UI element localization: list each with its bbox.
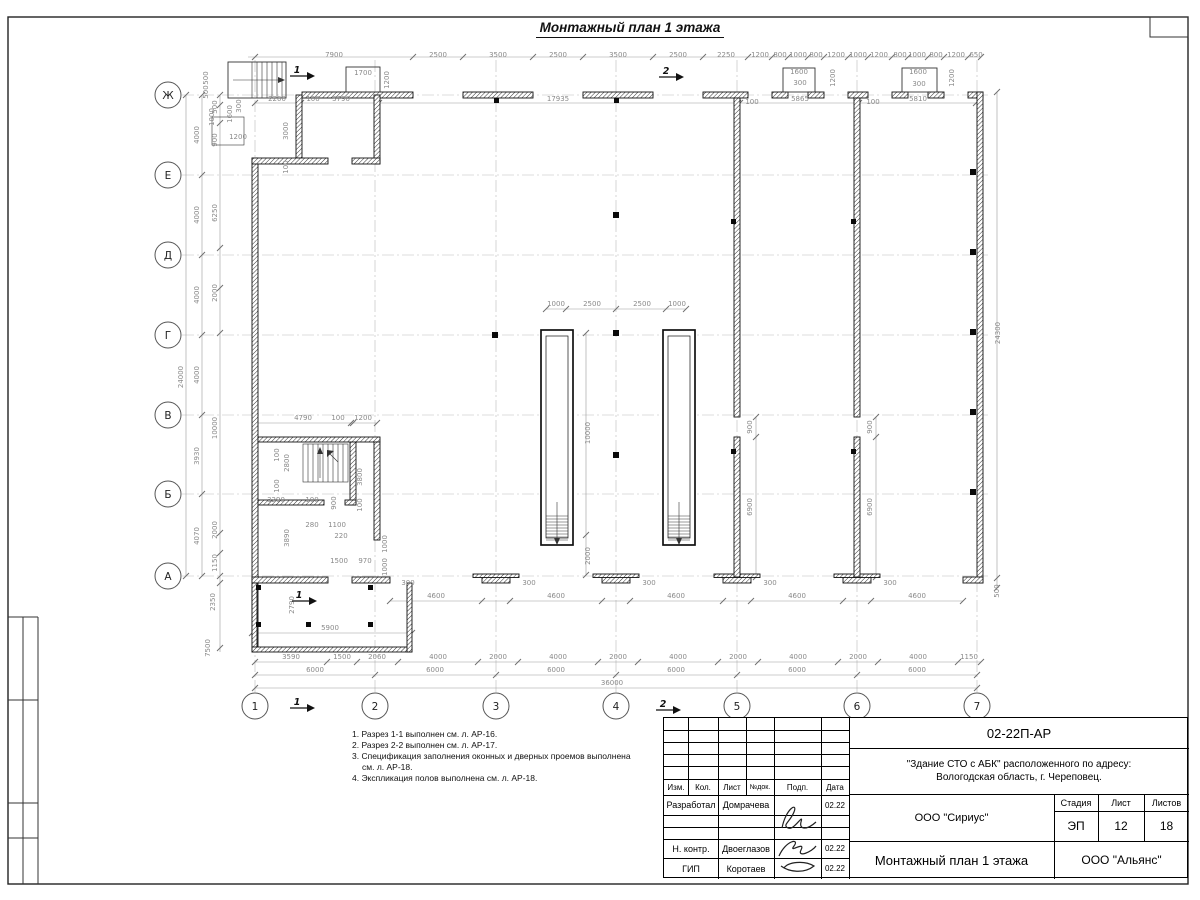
grid-and-dimensions [182,54,1000,694]
dimension-label: 5900 [321,624,339,632]
dimension-label: 1000 [208,108,216,126]
drawing-sheet: ЖЕДГВБА123456779002500350025003500250022… [0,0,1200,900]
dimension-label: 800 [773,51,786,59]
tb-date-developed: 02.22 [821,795,849,815]
tb-stage-label: Стадия [1054,794,1098,811]
dimension-label: 500 [202,85,210,98]
dimension-label: 6000 [667,666,685,674]
dimension-label: 4000 [193,126,201,144]
dimension-label: 1200 [948,69,956,87]
dimension-label: 2000 [609,653,627,661]
dimension-label: 1000 [381,558,389,576]
axis-label-row: А [164,571,172,583]
dimension-label: 4790 [294,414,312,422]
tb-col-list: Лист [718,779,746,795]
axis-label-row: Е [165,170,172,182]
dimension-label: 7500 [204,639,212,657]
dimension-label: 6900 [866,498,874,516]
dimension-label: 300 [522,579,535,587]
dimension-label: 1600 [790,68,808,76]
dimension-label: 1200 [229,133,247,141]
dimension-label: 1700 [354,69,372,77]
section-mark-arrow [307,72,315,80]
dimension-label: 2500 [583,300,601,308]
axis-label-col: 6 [854,701,861,713]
dimension-label: 800 [929,51,942,59]
dimension-label: 4000 [549,653,567,661]
tb-listov-label: Листов [1144,794,1189,811]
dimension-label: 900 [330,496,338,509]
dimension-label: 300 [763,579,776,587]
dimension-label: 1000 [668,300,686,308]
axis-label-col: 7 [974,701,981,713]
dimension-label: 6900 [746,498,754,516]
dimension-label: 2000 [584,547,592,565]
dimension-label: 2500 [669,51,687,59]
dimension-label: 5810 [909,95,927,103]
dimension-label: 900 [746,420,754,433]
dimension-label: 4600 [667,592,685,600]
axis-label-col: 4 [613,701,620,713]
dimension-label: 1200 [383,71,391,89]
tb-col-kol: Кол. [688,779,718,795]
axis-label-row: Г [165,330,171,342]
dimension-label: 800 [893,51,906,59]
dimension-label: 3500 [609,51,627,59]
note-line: 4. Экспликация полов выполнена см. л. АР… [352,773,634,784]
dimension-label: 4000 [669,653,687,661]
dimension-label: 100 [356,498,364,511]
dimension-label: 4000 [429,653,447,661]
inspection-pits [541,330,695,545]
note-line: 1. Разрез 1-1 выполнен см. л. АР-16. [352,729,634,740]
tb-listov-value: 18 [1144,811,1189,841]
dimension-label: 6000 [547,666,565,674]
dimension-label: 500 [993,584,1001,597]
dimension-label: 1150 [211,554,219,572]
dimension-label: 300 [235,99,243,112]
dimension-label: 2060 [368,653,386,661]
dimension-label: 4600 [908,592,926,600]
dimension-label: 2350 [209,593,217,611]
dimension-label: 100 [331,414,344,422]
axis-label-col: 3 [493,701,500,713]
tb-stage-value: ЭП [1054,811,1098,841]
tb-object: "Здание СТО с АБК" расположенного по адр… [849,748,1189,794]
dimension-label: 900 [211,133,219,146]
dimension-label: 24300 [994,322,1002,344]
notes: 1. Разрез 1-1 выполнен см. л. АР-16.2. Р… [352,729,634,784]
tb-role-developed: Разработал [664,795,718,815]
dimension-label: 17935 [547,95,569,103]
corner-doc-box [1150,17,1188,37]
tb-name-gip: Коротаев [718,858,774,879]
dimension-label: 300 [912,80,925,88]
dimension-label: 36000 [601,679,623,687]
tb-list-label: Лист [1098,794,1144,811]
dimension-label: 4000 [909,653,927,661]
tb-col-data: Дата [821,779,849,795]
dimension-label: 3930 [193,447,201,465]
dimension-label: 2500 [429,51,447,59]
dimension-label: 3500 [489,51,507,59]
dimension-label: 2000 [729,653,747,661]
tb-org-design: ООО "Сириус" [849,794,1054,841]
section-mark-arrow [673,706,681,714]
dimension-label: 2500 [633,300,651,308]
tb-drawing-title: Монтажный план 1 этажа [849,841,1054,879]
tb-date-ncontrol: 02.22 [821,839,849,858]
dimension-label: 6000 [788,666,806,674]
dimension-label: 100 [273,448,281,461]
section-mark-label: 1 [294,65,301,76]
dimension-label: 1200 [947,51,965,59]
dimension-label: 10000 [211,417,219,439]
tb-role-gip: ГИП [664,858,718,879]
axis-label-col: 5 [734,701,741,713]
generated-annotations: ЖЕДГВБА123456779002500350025003500250022… [155,51,1002,719]
dimension-label: 1100 [328,521,346,529]
dimension-label: 6000 [908,666,926,674]
dimension-label: 4070 [193,527,201,545]
dimension-label: 100 [273,479,281,492]
dimension-label: 650 [969,51,982,59]
dimension-label: 1600 [909,68,927,76]
dimension-label: 2500 [549,51,567,59]
dimension-label: 7900 [325,51,343,59]
dimension-label: 3290 [267,496,285,504]
walls [252,92,983,652]
dimension-label: 300 [793,79,806,87]
note-line: 3. Спецификация заполнения оконных и две… [352,751,634,773]
dimension-label: 4600 [427,592,445,600]
dimension-label: 4000 [193,366,201,384]
dimension-label: 4600 [788,592,806,600]
signature-gip [774,836,821,878]
dimension-label: 2000 [489,653,507,661]
dimension-label: 1200 [829,69,837,87]
axis-label-col: 1 [252,701,259,713]
title-block: Изм. Кол. Лист №док. Подп. Дата Разработ… [663,717,1188,878]
section-mark-arrow [676,73,684,81]
section-mark-label: 1 [296,590,303,601]
frame-stamp-cells [8,617,38,884]
axis-label-row: Ж [162,90,174,102]
dimension-label: 900 [866,420,874,433]
dimension-label: 100 [866,98,879,106]
dimension-label: 300 [401,579,414,587]
section-mark-arrow [309,597,317,605]
tb-object-line1: "Здание СТО с АБК" расположенного по адр… [907,758,1132,771]
dimension-label: 3000 [282,122,290,140]
dimension-label: 220 [334,532,347,540]
dimension-label: 6000 [306,666,324,674]
axis-label-col: 2 [372,701,379,713]
dimension-label: 500 [202,71,210,84]
tb-name-ncontrol: Двоеглазов [718,839,774,858]
tb-role-ncontrol: Н. контр. [664,839,718,858]
dimension-label: 1000 [547,300,565,308]
plan-title: Монтажный план 1 этажа [505,20,755,35]
dimension-label: 1200 [751,51,769,59]
dimension-label: 1200 [354,414,372,422]
dimension-label: 1150 [960,653,978,661]
dimension-label: 5865 [791,95,809,103]
dimension-label: 10000 [584,422,592,444]
axis-label-row: В [164,410,171,422]
dimension-label: 2250 [717,51,735,59]
staircase [303,444,348,482]
note-line: 2. Разрез 2-2 выполнен см. л. АР-17. [352,740,634,751]
dimension-label: 970 [358,557,371,565]
dimension-label: 100 [305,496,318,504]
dimension-label: 300 [642,579,655,587]
tb-list-value: 12 [1098,811,1144,841]
plan-title-text: Монтажный план 1 этажа [536,20,725,38]
section-mark-label: 2 [660,699,667,710]
dimension-label: 2000 [211,521,219,539]
tb-object-line2: Вологодская область, г. Череповец. [936,771,1102,784]
section-mark-label: 2 [663,66,670,77]
dimension-label: 3890 [283,529,291,547]
axis-label-row: Д [164,250,172,262]
dimension-label: 1200 [870,51,888,59]
dimension-label: 3590 [282,653,300,661]
dimension-label: 1200 [827,51,845,59]
dimension-label: 3790 [332,95,350,103]
dimension-label: 100 [745,98,758,106]
dimension-label: 100 [282,160,290,173]
dimension-label: 4000 [789,653,807,661]
dimension-label: 300 [883,579,896,587]
tb-date-gip: 02.22 [821,858,849,879]
signature-developed [774,796,821,838]
dimension-label: 2800 [283,454,291,472]
dimension-label: 4000 [193,206,201,224]
dimension-label: 2200 [268,95,286,103]
dimension-label: 6250 [211,204,219,222]
dimension-label: 1000 [908,51,926,59]
dimension-label: 1000 [849,51,867,59]
dimension-label: 24000 [177,366,185,388]
dimension-label: 3800 [356,468,364,486]
tb-org-client: ООО "Альянс" [1054,841,1189,879]
dimension-label: 2000 [211,284,219,302]
dimension-label: 2000 [849,653,867,661]
dimension-label: 1000 [789,51,807,59]
dimension-label: 1000 [381,535,389,553]
dimension-label: 100 [306,95,319,103]
dimension-label: 800 [809,51,822,59]
dimension-label: 4600 [547,592,565,600]
tb-col-ndok: №док. [746,779,774,795]
tb-name-developed: Домрачева [718,795,774,815]
dimension-label: 1600 [226,105,234,123]
axis-label-row: Б [164,489,171,501]
dimension-label: 280 [305,521,318,529]
tb-col-izm: Изм. [664,779,688,795]
dimension-label: 4000 [193,286,201,304]
dimension-label: 1500 [333,653,351,661]
tb-doc-number: 02-22П-АР [849,718,1189,748]
dimension-label: 6000 [426,666,444,674]
porch-direction-arrow [278,77,285,83]
section-mark-label: 1 [294,697,301,708]
tb-col-podp: Подп. [774,779,821,795]
dimension-label: 1500 [330,557,348,565]
section-mark-arrow [307,704,315,712]
